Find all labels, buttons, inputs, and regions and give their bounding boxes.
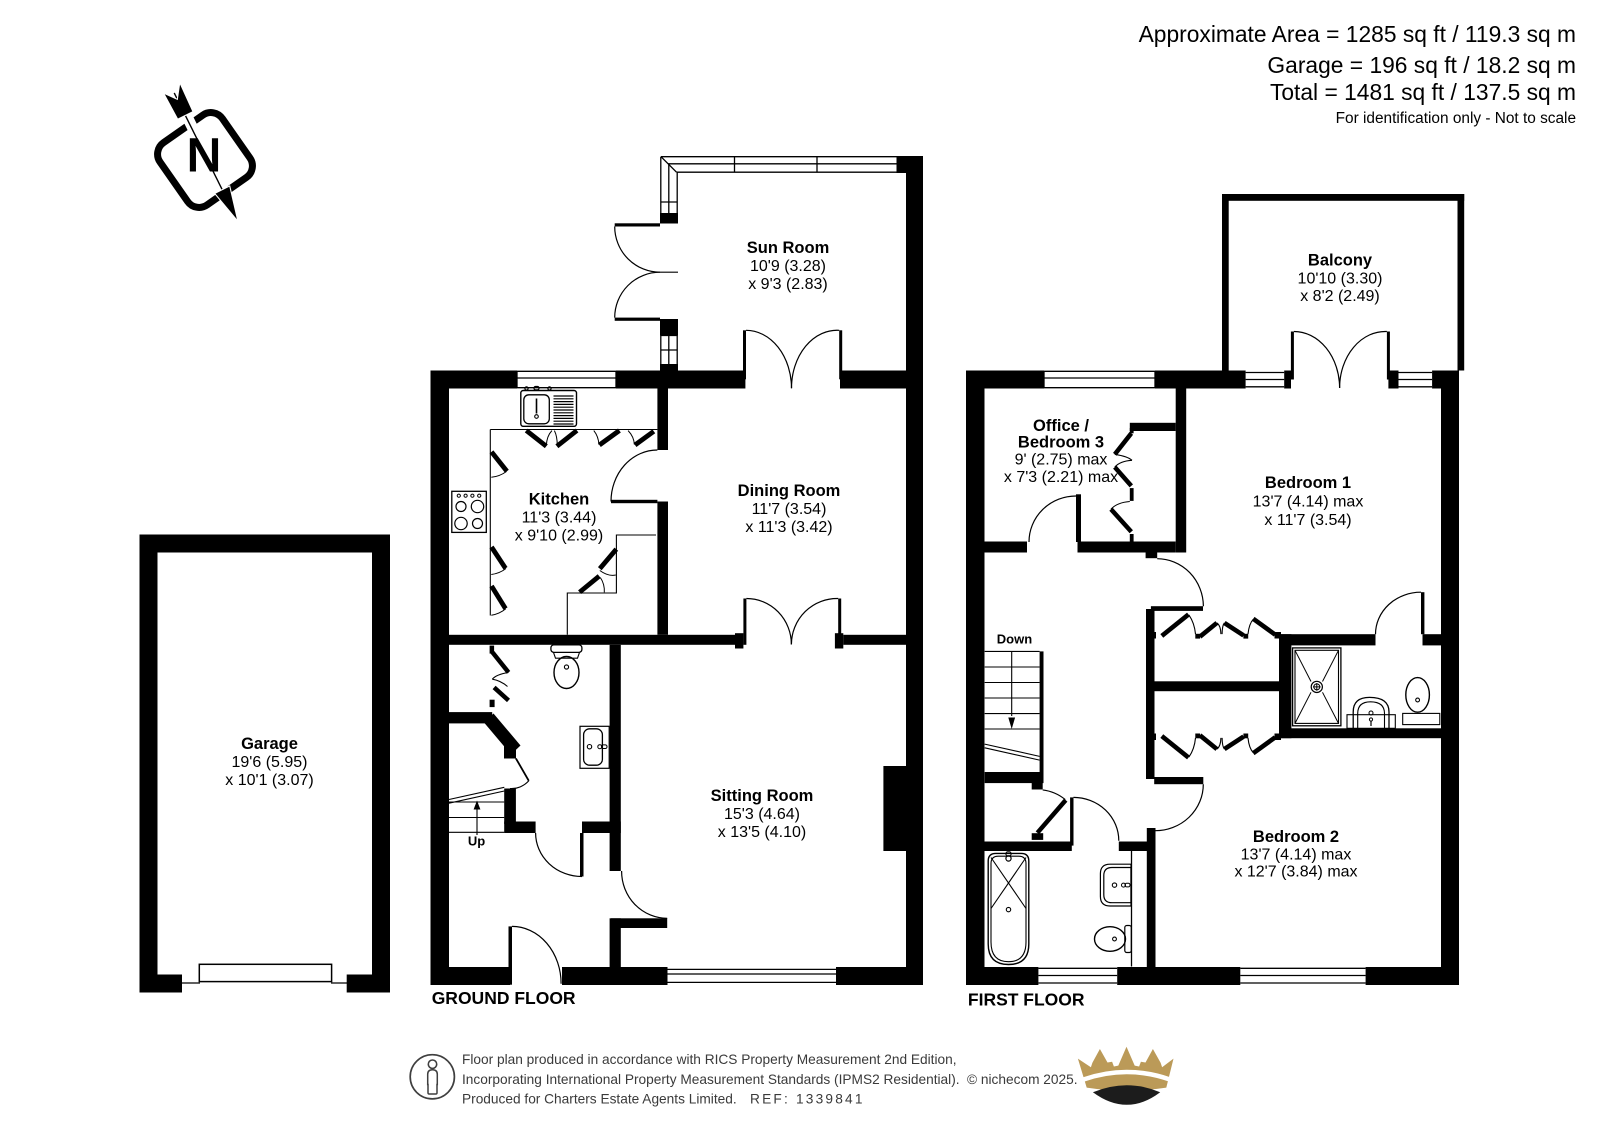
svg-text:Down: Down — [997, 632, 1032, 647]
svg-text:Kitchen: Kitchen — [529, 491, 590, 509]
svg-text:x 9'3 (2.83): x 9'3 (2.83) — [748, 276, 828, 293]
svg-text:N: N — [187, 130, 222, 183]
svg-text:Total = 1481 sq ft / 137.5 sq: Total = 1481 sq ft / 137.5 sq m — [1270, 79, 1576, 105]
svg-text:x 7'3 (2.21) max: x 7'3 (2.21) max — [1004, 469, 1118, 486]
svg-text:Floor plan produced in accorda: Floor plan produced in accordance with R… — [462, 1052, 957, 1067]
svg-text:Bedroom 1: Bedroom 1 — [1265, 474, 1351, 492]
svg-text:13'7 (4.14) max: 13'7 (4.14) max — [1253, 494, 1364, 511]
svg-text:Produced for Charters Estate A: Produced for Charters Estate Agents Limi… — [462, 1092, 737, 1107]
svg-text:x 13'5 (4.10): x 13'5 (4.10) — [718, 824, 806, 841]
svg-text:Balcony: Balcony — [1308, 252, 1373, 270]
svg-text:19'6 (5.95): 19'6 (5.95) — [232, 754, 308, 771]
svg-text:For identification only - Not: For identification only - Not to scale — [1336, 110, 1576, 127]
svg-text:x 12'7 (3.84) max: x 12'7 (3.84) max — [1234, 864, 1357, 881]
svg-text:Sun Room: Sun Room — [747, 239, 830, 257]
svg-text:FIRST FLOOR: FIRST FLOOR — [968, 990, 1085, 1010]
svg-text:GROUND FLOOR: GROUND FLOOR — [432, 988, 576, 1008]
svg-text:x 11'3 (3.42): x 11'3 (3.42) — [745, 519, 832, 536]
svg-text:Incorporating International Pr: Incorporating International Property Mea… — [462, 1072, 960, 1087]
svg-text:REF: 1339841: REF: 1339841 — [750, 1092, 865, 1107]
svg-text:Garage: Garage — [241, 735, 298, 753]
svg-text:x 8'2 (2.49): x 8'2 (2.49) — [1300, 288, 1380, 305]
svg-text:Sitting Room: Sitting Room — [711, 787, 814, 805]
svg-text:13'7 (4.14) max: 13'7 (4.14) max — [1241, 847, 1352, 864]
svg-text:x 11'7 (3.54): x 11'7 (3.54) — [1264, 512, 1351, 529]
svg-text:Dining Room: Dining Room — [738, 482, 841, 500]
svg-text:15'3 (4.64): 15'3 (4.64) — [724, 806, 800, 823]
svg-text:11'7 (3.54): 11'7 (3.54) — [752, 501, 827, 518]
svg-text:© nichecom 2025.: © nichecom 2025. — [967, 1072, 1078, 1087]
svg-text:Up: Up — [468, 834, 485, 849]
svg-text:10'10 (3.30): 10'10 (3.30) — [1298, 271, 1383, 288]
svg-text:9' (2.75) max: 9' (2.75) max — [1015, 452, 1108, 469]
svg-text:Bedroom 3: Bedroom 3 — [1018, 434, 1104, 452]
svg-text:10'9 (3.28): 10'9 (3.28) — [750, 258, 826, 275]
svg-text:11'3 (3.44): 11'3 (3.44) — [522, 510, 597, 527]
svg-text:x 10'1 (3.07): x 10'1 (3.07) — [225, 772, 313, 789]
svg-text:Office /: Office / — [1033, 417, 1089, 435]
svg-text:Approximate Area = 1285 sq ft: Approximate Area = 1285 sq ft / 119.3 sq… — [1139, 21, 1576, 47]
svg-text:Garage = 196 sq ft / 18.2 sq m: Garage = 196 sq ft / 18.2 sq m — [1267, 52, 1576, 78]
svg-text:x 9'10 (2.99): x 9'10 (2.99) — [515, 528, 603, 545]
svg-text:Bedroom 2: Bedroom 2 — [1253, 828, 1339, 846]
